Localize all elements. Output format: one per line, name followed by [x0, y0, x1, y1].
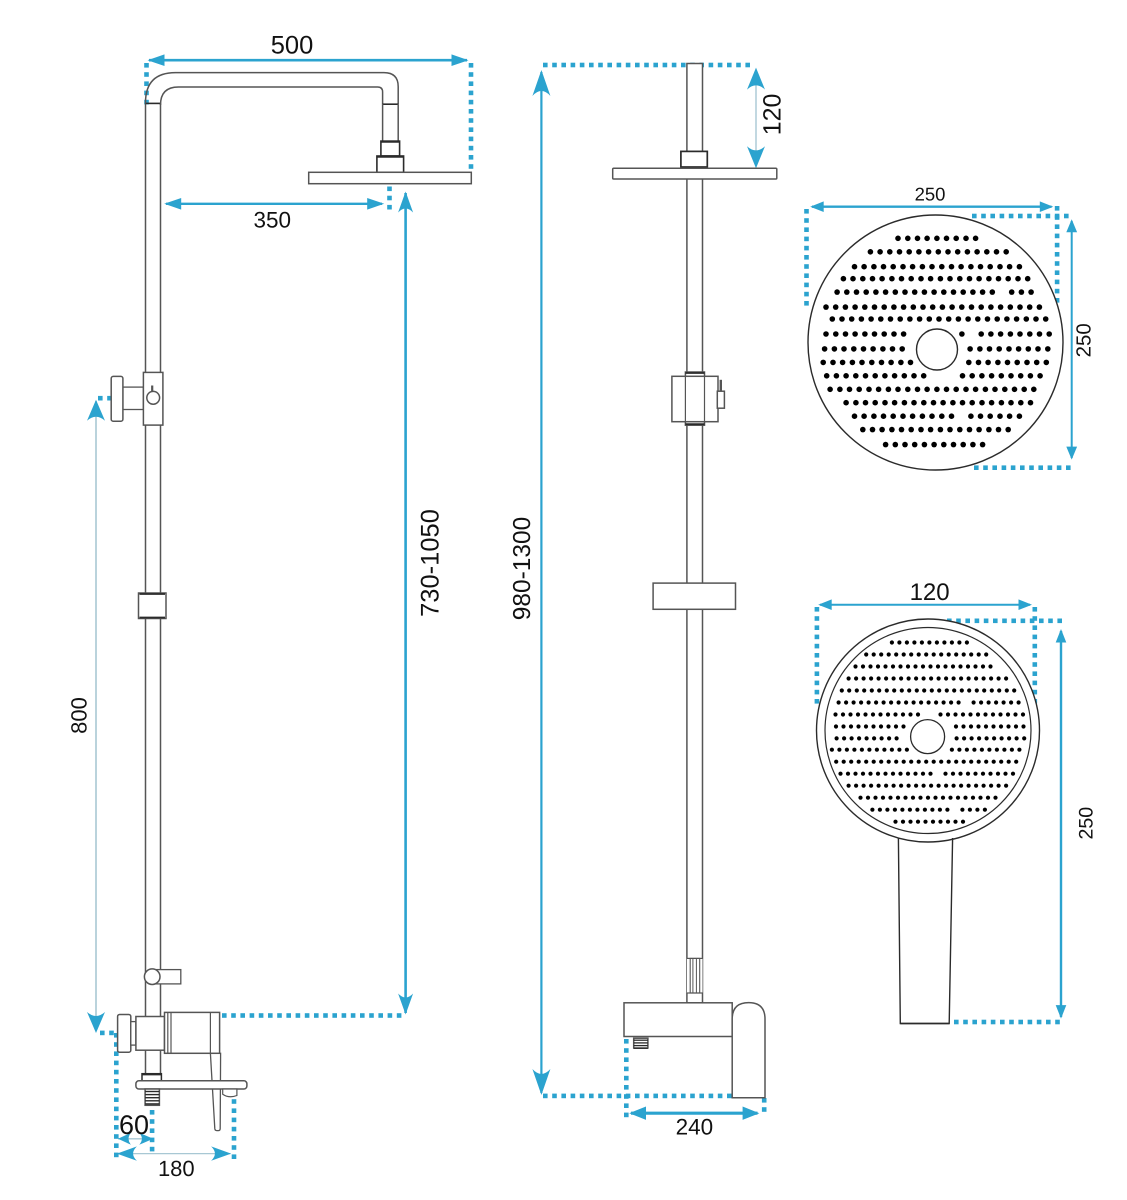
svg-text:120: 120	[759, 94, 787, 136]
svg-text:350: 350	[254, 207, 292, 232]
svg-text:120: 120	[910, 579, 950, 606]
svg-text:180: 180	[158, 1156, 195, 1181]
svg-text:250: 250	[915, 184, 946, 205]
svg-text:730-1050: 730-1050	[416, 509, 444, 617]
svg-text:250: 250	[1076, 807, 1098, 840]
svg-text:60: 60	[119, 1110, 149, 1140]
svg-text:250: 250	[1074, 323, 1096, 357]
svg-text:240: 240	[676, 1115, 714, 1140]
svg-text:500: 500	[271, 32, 314, 60]
svg-text:800: 800	[67, 697, 92, 734]
svg-text:980-1300: 980-1300	[509, 517, 536, 621]
